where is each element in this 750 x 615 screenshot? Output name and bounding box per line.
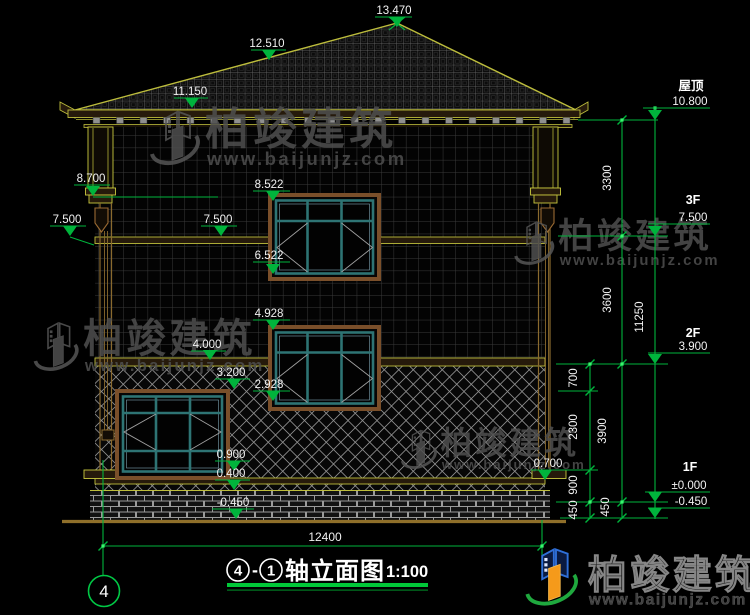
cad-viewer-stage: 柏竣建筑 www.baijunjz.com 柏竣建筑 www.baijunjz.… xyxy=(0,0,750,615)
elevation-value: 10.800 xyxy=(672,96,707,108)
dentil-block xyxy=(140,118,147,124)
elevation-value: 7.500 xyxy=(204,214,233,226)
title-axis-end: 1 xyxy=(267,563,275,580)
elevation-marker: -0.450 xyxy=(648,496,710,518)
column-capital-right xyxy=(531,188,561,195)
dentil-block xyxy=(493,118,500,124)
axis-bubble-label: 4 xyxy=(99,582,108,601)
title-axis-start: 4 xyxy=(234,563,243,580)
elevation-value: 11.150 xyxy=(173,86,207,98)
logo-website-text: www.baijunjz.com xyxy=(588,592,747,609)
dentil-block xyxy=(422,118,429,124)
elevation-marker: 10.800屋顶 xyxy=(643,78,710,120)
elevation-value: 4.000 xyxy=(193,339,222,351)
dentil-block xyxy=(93,118,100,124)
elevation-value: 0.400 xyxy=(217,468,246,480)
axis-bubble-4: 4 xyxy=(89,576,120,607)
title-separator: - xyxy=(252,560,258,580)
elevation-value: 8.700 xyxy=(77,173,106,185)
overall-width-dimension: 12400 xyxy=(308,530,342,544)
pedestal-cap-left xyxy=(84,470,118,479)
dimension-value: 900 xyxy=(568,475,580,494)
dimension-node xyxy=(588,362,591,365)
company-logo: 柏竣建筑 www.baijunjz.com xyxy=(527,549,750,608)
watermark-website-text: www.baijunjz.com xyxy=(559,253,720,269)
dimension-node xyxy=(620,500,623,503)
dimension-value: 700 xyxy=(568,368,580,387)
elevation-value: 7.500 xyxy=(679,212,708,224)
dimension-value: 3900 xyxy=(597,418,609,444)
title-underline xyxy=(227,583,428,587)
window-3f xyxy=(270,195,379,279)
roof-slope xyxy=(75,23,576,110)
elevation-value: 0.900 xyxy=(217,449,246,461)
downpipe-shoe-left xyxy=(102,430,114,440)
dentil-block xyxy=(399,118,406,124)
elevation-marker: 7.500 xyxy=(50,214,86,236)
dimension-value: 2300 xyxy=(568,414,580,440)
floor-label: 3F xyxy=(686,193,701,207)
dentil-block xyxy=(540,118,547,124)
window-1f xyxy=(117,391,228,478)
level-triangle xyxy=(63,226,77,236)
elevation-value: 12.510 xyxy=(249,38,284,50)
watermark-company-text: 柏竣建筑 xyxy=(440,425,578,461)
dimension-value: 11250 xyxy=(634,301,646,332)
dimension-value: 450 xyxy=(600,497,612,516)
elevation-value: 7.500 xyxy=(53,214,82,226)
elevation-value: 3.900 xyxy=(679,341,708,353)
elevation-marker: 3.9002F xyxy=(648,326,710,364)
floor-label: 2F xyxy=(686,326,701,340)
brick-plinth xyxy=(90,490,550,520)
title-text: 轴立面图 xyxy=(285,557,385,585)
dimension-node xyxy=(540,544,543,547)
dentil-block xyxy=(563,118,570,124)
elevation-value: 3.200 xyxy=(217,367,246,379)
dentil-block xyxy=(516,118,523,124)
level-triangle xyxy=(648,110,662,120)
elevation-value: 8.522 xyxy=(255,179,284,191)
elevation-value: 0.700 xyxy=(534,458,563,470)
dimension-value: 3300 xyxy=(602,165,614,191)
dentil-block xyxy=(469,118,476,124)
level-triangle xyxy=(648,354,662,364)
dimension-node xyxy=(620,118,623,121)
title-scale: 1:100 xyxy=(386,563,428,581)
title-underline-thin xyxy=(227,590,428,591)
elevation-drawing-canvas: 柏竣建筑 www.baijunjz.com 柏竣建筑 www.baijunjz.… xyxy=(0,0,750,615)
elevation-value: 6.522 xyxy=(255,250,284,262)
elevation-value: 13.470 xyxy=(376,5,411,17)
elevation-value: 2.928 xyxy=(255,379,284,391)
leader-line xyxy=(70,237,94,245)
dimension-node xyxy=(620,362,623,365)
level-triangle xyxy=(648,492,662,502)
company-logo-icon xyxy=(527,549,576,603)
dentil-block xyxy=(446,118,453,124)
watermark-company-text: 柏竣建筑 xyxy=(83,317,256,361)
elevation-value: -0.450 xyxy=(217,497,250,509)
elevation-value: ±0.000 xyxy=(671,480,706,492)
watermark-website-text: www.baijunjz.com xyxy=(206,148,407,169)
dimension-node xyxy=(620,234,623,237)
floor-label: 屋顶 xyxy=(678,78,704,93)
floor-label: 1F xyxy=(683,460,698,474)
dimension-node xyxy=(101,544,104,547)
watermark-company-text: 柏竣建筑 xyxy=(205,105,397,154)
dimension-value: 450 xyxy=(568,500,580,519)
drawing-title: 4 - 1 轴立面图 1:100 xyxy=(227,557,428,591)
elevation-value: 4.928 xyxy=(255,308,284,320)
window-2f xyxy=(270,327,379,409)
dimension-node xyxy=(588,500,591,503)
dentil-block xyxy=(117,118,124,124)
dimension-value: 3600 xyxy=(602,287,614,313)
elevation-marker: 13.470 xyxy=(375,5,412,30)
watermark-logo-icon xyxy=(35,323,76,369)
elevation-value: -0.450 xyxy=(675,496,708,508)
level-triangle xyxy=(648,508,662,518)
